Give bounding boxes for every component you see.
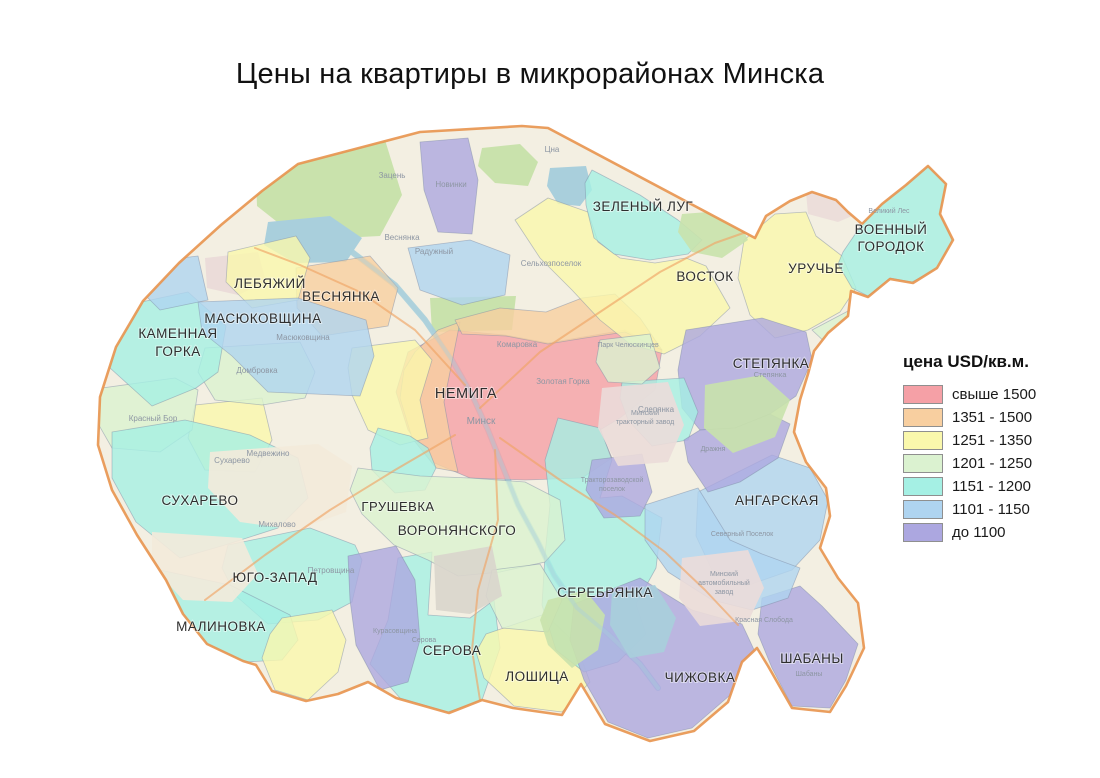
- district-label-masyukovshina: МАСЮКОВЩИНА: [204, 311, 321, 326]
- place-label: Степянка: [754, 370, 788, 379]
- legend-item-label: 1251 - 1350: [952, 432, 1032, 449]
- base-industrial: [679, 550, 764, 626]
- legend-swatch: [903, 431, 943, 450]
- place-label: Зацень: [379, 171, 406, 180]
- district-label-angarskaya: АНГАРСКАЯ: [735, 493, 819, 508]
- place-label: тракторный завод: [616, 418, 674, 426]
- district-label-kamennaya-gorka: ГОРКА: [155, 344, 200, 359]
- district-label-kamennaya-gorka: КАМЕННАЯ: [138, 326, 217, 341]
- place-label: Веснянка: [384, 233, 420, 242]
- district-label-grushevka: ГРУШЕВКА: [361, 499, 434, 514]
- place-label: поселок: [599, 486, 626, 493]
- legend-item: 1151 - 1200: [903, 476, 1093, 496]
- place-label: Шабаны: [796, 670, 823, 678]
- district-label-chizhovka: ЧИЖОВКА: [665, 670, 736, 685]
- place-label: автомобильный: [698, 579, 750, 587]
- place-label: Курасовщина: [373, 628, 417, 635]
- place-label: Золотая Горка: [536, 377, 590, 386]
- district-label-vostok: ВОСТОК: [676, 269, 733, 284]
- minsk-price-map-figure: Цены на квартиры в микрорайонах Минска З…: [0, 0, 1100, 778]
- district-label-loshitsa: ЛОШИЦА: [505, 669, 568, 684]
- legend-swatch: [903, 500, 943, 519]
- place-label: Сельхозпоселок: [521, 259, 582, 268]
- legend-item-label: свыше 1500: [952, 386, 1036, 403]
- legend-swatch: [903, 454, 943, 473]
- place-label: завод: [715, 589, 734, 596]
- place-label: Комаровка: [497, 340, 538, 349]
- legend-item-label: 1351 - 1500: [952, 409, 1032, 426]
- district-label-nemiga: НЕМИГА: [435, 386, 497, 402]
- district-label-uruchye: УРУЧЬЕ: [788, 261, 844, 276]
- legend-swatch: [903, 523, 943, 542]
- place-label: Масюковщина: [276, 333, 330, 342]
- legend-item-label: 1201 - 1250: [952, 455, 1032, 472]
- legend-item: свыше 1500: [903, 384, 1093, 404]
- place-label: Красная Слобода: [735, 616, 793, 624]
- place-label: Минск: [467, 416, 496, 427]
- legend-swatch: [903, 477, 943, 496]
- place-label: Сухарево: [214, 456, 250, 465]
- district-label-zeleny-lug: ЗЕЛЕНЫЙ ЛУГ: [593, 199, 694, 214]
- district-label-shabany: ШАБАНЫ: [780, 651, 844, 666]
- place-label: Радужный: [415, 247, 453, 256]
- place-label: Домбровка: [236, 366, 278, 375]
- legend-swatch: [903, 385, 943, 404]
- district-label-suharevo: СУХАРЕВО: [162, 493, 239, 508]
- district-label-voronyanskogo: ВОРОНЯНСКОГО: [398, 523, 517, 538]
- legend-item: 1251 - 1350: [903, 430, 1093, 450]
- place-label: Минский: [631, 409, 659, 417]
- legend-item-label: до 1100: [952, 524, 1006, 541]
- place-label: Цна: [545, 145, 560, 154]
- legend: цена USD/кв.м. свыше 1500 1351 - 1500 12…: [903, 352, 1093, 545]
- legend-item: 1201 - 1250: [903, 453, 1093, 473]
- place-label: Красный Бор: [129, 414, 178, 423]
- district-label-lebyazhy: ЛЕБЯЖИЙ: [234, 276, 306, 291]
- district-label-voenny-gorodok: ВОЕННЫЙ: [855, 222, 928, 237]
- legend-swatch: [903, 408, 943, 427]
- place-label: Дражня: [701, 446, 726, 453]
- district-label-serova: СЕРОВА: [423, 643, 482, 658]
- legend-item: 1351 - 1500: [903, 407, 1093, 427]
- place-label: Великий Лес: [868, 207, 910, 215]
- place-label: Минский: [710, 570, 738, 578]
- place-label: Новинки: [435, 180, 466, 189]
- district-label-vesnyanka: ВЕСНЯНКА: [302, 289, 380, 304]
- district-label-voenny-gorodok: ГОРОДОК: [858, 239, 925, 254]
- place-label: Северный Поселок: [711, 530, 774, 538]
- district-label-malinovka: МАЛИНОВКА: [176, 619, 266, 634]
- district-label-stepyanka: СТЕПЯНКА: [733, 356, 810, 371]
- district-label-yugo-zapad: ЮГО-ЗАПАД: [233, 570, 318, 585]
- legend-item: до 1100: [903, 522, 1093, 542]
- legend-item-label: 1151 - 1200: [952, 478, 1031, 495]
- place-label: Михалово: [258, 520, 296, 529]
- legend-item-label: 1101 - 1150: [952, 501, 1030, 518]
- legend-item: 1101 - 1150: [903, 499, 1093, 519]
- place-label: Парк Челюскинцев: [597, 342, 659, 349]
- place-label: Медвежино: [247, 449, 290, 458]
- legend-title: цена USD/кв.м.: [903, 352, 1093, 372]
- district-label-serebryanka: СЕРЕБРЯНКА: [557, 585, 653, 600]
- place-label: Тракторозаводской: [581, 476, 644, 484]
